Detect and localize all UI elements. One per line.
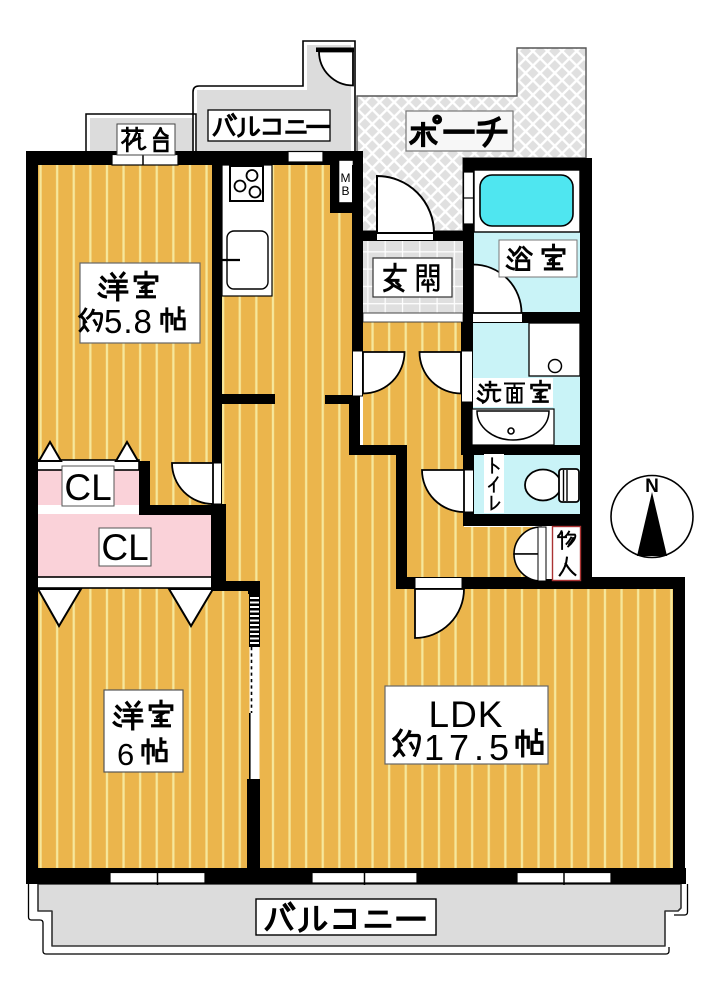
svg-text:B: B	[341, 184, 349, 198]
svg-text:CL: CL	[64, 467, 111, 508]
svg-text:6: 6	[117, 737, 134, 772]
svg-text:M: M	[341, 171, 351, 185]
svg-text:5.8: 5.8	[104, 303, 153, 340]
svg-text:17.5: 17.5	[424, 727, 514, 768]
svg-text:CL: CL	[101, 527, 148, 568]
